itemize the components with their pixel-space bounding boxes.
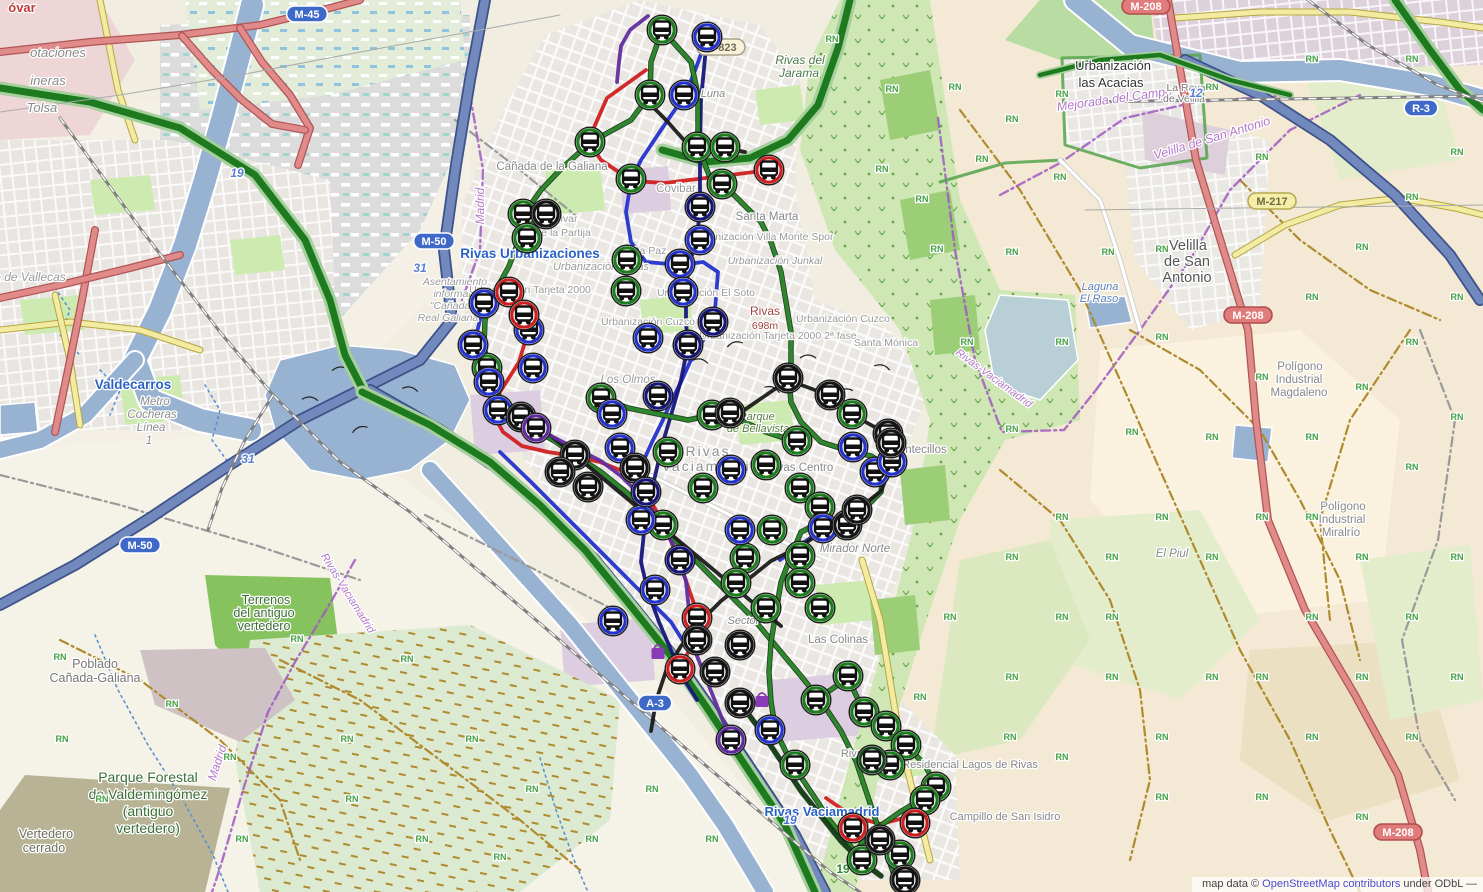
rn-label: RN	[1451, 412, 1464, 422]
rn-label: RN	[1256, 512, 1269, 522]
map-label: Terrenos	[242, 593, 291, 607]
map-label: Santa Mónica	[854, 337, 918, 349]
bus-stop-icon[interactable]	[631, 477, 661, 507]
map-label: del antiguo	[233, 606, 294, 620]
bus-stop-icon[interactable]	[838, 813, 868, 843]
rn-label: RN	[341, 734, 354, 744]
rn-label: RN	[876, 164, 889, 174]
attribution: map data © OpenStreetMap contributors un…	[1192, 877, 1483, 892]
map-label: Madrid	[473, 187, 487, 224]
rn-label: RN	[1056, 337, 1069, 347]
rn-label: RN	[1206, 82, 1219, 92]
map-label: Urbanización	[1075, 58, 1151, 73]
rn-label: RN	[1056, 89, 1069, 99]
rn-label: RN	[961, 337, 974, 347]
map-label: de San	[1164, 254, 1210, 270]
attribution-suffix: under ODbL —	[1400, 878, 1477, 890]
rn-label: RN	[466, 734, 479, 744]
rn-label: RN	[1306, 732, 1319, 742]
rn-label: RN	[1126, 427, 1139, 437]
svg-text:A-3: A-3	[646, 698, 664, 710]
bus-stop-icon[interactable]	[754, 155, 784, 185]
svg-text:M-208: M-208	[1130, 1, 1161, 13]
map-label: Laguna	[1082, 281, 1119, 293]
rn-label: RN	[1356, 242, 1369, 252]
map-label: 12	[1189, 86, 1203, 100]
bus-stop-icon[interactable]	[575, 127, 605, 157]
rn-label: RN	[1451, 147, 1464, 157]
rn-label: RN	[1156, 512, 1169, 522]
bus-stop-icon[interactable]	[715, 398, 745, 428]
rn-label: RN	[1156, 732, 1169, 742]
rn-label: RN	[1006, 672, 1019, 682]
map-label: óvar	[8, 0, 35, 15]
map-canvas[interactable]: óvarotacionesinerasTolsae de VallecasVal…	[0, 0, 1483, 892]
rn-label: RN	[931, 244, 944, 254]
rn-label: RN	[646, 784, 659, 794]
rn-label: RN	[1256, 672, 1269, 682]
rn-label: RN	[886, 84, 899, 94]
rn-label: RN	[54, 652, 67, 662]
rn-label: RN	[1356, 672, 1369, 682]
map-label: Luna	[701, 88, 725, 100]
rn-label: RN	[976, 154, 989, 164]
bus-stop-icon[interactable]	[685, 225, 715, 255]
map-label: Real Galiana	[418, 312, 479, 324]
bus-stop-icon[interactable]	[458, 330, 488, 360]
road-shield-A-3: A-3	[638, 695, 672, 711]
map-label: Santa Marta	[736, 211, 799, 223]
map-root: óvarotacionesinerasTolsae de VallecasVal…	[0, 0, 1483, 892]
rn-label: RN	[1156, 244, 1169, 254]
map-label: Cocheras	[127, 409, 176, 421]
rn-label: RN	[914, 692, 927, 702]
rn-label: RN	[1006, 552, 1019, 562]
bus-stop-icon[interactable]	[725, 515, 755, 545]
road-shield-M-208: M-208	[1374, 824, 1422, 840]
rn-label: RN	[949, 82, 962, 92]
map-label: (antiguo	[123, 803, 174, 819]
bus-stop-icon[interactable]	[597, 399, 627, 429]
map-label: 19	[230, 166, 244, 180]
rn-label: RN	[1406, 462, 1419, 472]
rn-label: RN	[1406, 54, 1419, 64]
svg-text:M-208: M-208	[1382, 827, 1413, 839]
rn-label: RN	[1156, 792, 1169, 802]
rn-label: RN	[291, 634, 304, 644]
bus-stop-icon[interactable]	[668, 277, 698, 307]
bus-stop-icon[interactable]	[707, 169, 737, 199]
bus-stop-icon[interactable]	[785, 541, 815, 571]
rn-label: RN	[1206, 552, 1219, 562]
svg-text:M-50: M-50	[421, 236, 446, 248]
map-label: Mirador Norte	[820, 543, 890, 555]
rn-label: RN	[944, 612, 957, 622]
bus-stop-icon[interactable]	[573, 472, 603, 502]
rn-label: RN	[1406, 612, 1419, 622]
bus-stop-icon[interactable]	[857, 745, 887, 775]
map-label: Industrial	[1319, 514, 1366, 526]
bus-stop-icon[interactable]	[890, 865, 920, 892]
map-label: Vertedero	[19, 827, 73, 841]
bus-stop-icon[interactable]	[598, 606, 628, 636]
rn-label: RN	[166, 699, 179, 709]
map-label: El Piul	[1156, 548, 1189, 560]
rn-label: RN	[96, 794, 109, 804]
rn-label: RN	[1306, 292, 1319, 302]
rn-label: RN	[1451, 292, 1464, 302]
bus-stop-icon[interactable]	[688, 473, 718, 503]
map-label: Línea	[137, 422, 166, 434]
bus-stop-icon[interactable]	[751, 593, 781, 623]
bus-stop-icon[interactable]	[612, 245, 642, 275]
rn-label: RN	[1206, 672, 1219, 682]
svg-text:M-45: M-45	[294, 9, 319, 21]
map-label: Velilla	[1169, 238, 1208, 254]
bus-stop-icon[interactable]	[633, 323, 663, 353]
rn-label: RN	[1306, 432, 1319, 442]
bus-stop-icon[interactable]	[521, 413, 551, 443]
bus-stop-icon[interactable]	[698, 307, 728, 337]
map-label: vertedero	[238, 619, 291, 633]
rn-label: RN	[1256, 152, 1269, 162]
rn-label: RN	[1006, 424, 1019, 434]
bus-stop-icon[interactable]	[643, 381, 673, 411]
map-label: "Cañada	[430, 300, 471, 312]
map-label: Rivas del	[775, 53, 825, 67]
attribution-prefix: map data ©	[1202, 878, 1262, 890]
bus-stop-icon[interactable]	[721, 568, 751, 598]
bus-stop-icon[interactable]	[773, 363, 803, 393]
bus-stop-icon[interactable]	[751, 450, 781, 480]
rn-label: RN	[1451, 672, 1464, 682]
road-shield-R-3: R-3	[1404, 100, 1438, 116]
rn-label: RN	[236, 834, 249, 844]
rn-label: RN	[1006, 114, 1019, 124]
map-label: Valdecarros	[95, 377, 172, 392]
map-label: 19	[783, 813, 797, 827]
rn-label: RN	[1256, 372, 1269, 382]
rn-label: RN	[1306, 512, 1319, 522]
map-label: 1	[146, 435, 152, 447]
area-corridor-forest-4	[900, 465, 950, 525]
bus-stop-icon[interactable]	[635, 80, 665, 110]
bus-stop-icon[interactable]	[665, 654, 695, 684]
bus-stop-icon[interactable]	[710, 132, 740, 162]
bus-stop-icon[interactable]	[518, 353, 548, 383]
map-label: Miralrío	[1322, 527, 1360, 539]
bus-stop-icon[interactable]	[665, 249, 695, 279]
bus-stop-icon[interactable]	[531, 199, 561, 229]
rn-label: RN	[494, 852, 507, 862]
map-label: Jarama	[778, 66, 819, 80]
road-shield-M-45: M-45	[287, 6, 328, 22]
map-label: El Raso	[1080, 293, 1119, 305]
area-green-patch-v3	[230, 235, 285, 275]
map-label: Los Olmos	[601, 374, 656, 386]
map-label: Magdaleno	[1271, 387, 1328, 399]
area-corridor-forest-1	[880, 70, 940, 140]
map-label: cerrado	[23, 841, 65, 855]
bus-stop-icon[interactable]	[616, 164, 646, 194]
bus-stop-icon[interactable]	[815, 380, 845, 410]
map-label: las Acacias	[1078, 75, 1144, 90]
road-shield-M-217: M-217	[1248, 193, 1296, 209]
rn-label: RN	[586, 834, 599, 844]
rn-label: RN	[346, 794, 359, 804]
map-label: 31	[241, 452, 255, 466]
map-label: Cañada de la Galiana	[496, 161, 608, 173]
rn-label: RN	[1056, 512, 1069, 522]
map-label: Antonio	[1162, 270, 1211, 286]
bus-stop-icon[interactable]	[785, 568, 815, 598]
map-label: Polígono	[1320, 501, 1365, 513]
bus-stop-icon[interactable]	[669, 80, 699, 110]
bus-stop-icon[interactable]	[665, 545, 695, 575]
rn-label: RN	[1102, 247, 1115, 257]
bus-stop-icon[interactable]	[647, 15, 677, 45]
map-label: ineras	[30, 73, 66, 88]
road-shield-M-208: M-208	[1122, 0, 1170, 14]
bus-stop-icon[interactable]	[782, 426, 812, 456]
map-label: Campillo de San Isidro	[950, 811, 1061, 823]
rn-label: RN	[1004, 732, 1017, 742]
map-label: Urbanización Cuzco	[796, 313, 890, 325]
rn-label: RN	[1356, 552, 1369, 562]
map-label: Poblado	[72, 657, 118, 671]
map-label: otaciones	[30, 45, 86, 60]
rn-label: RN	[1406, 732, 1419, 742]
bus-stop-icon[interactable]	[626, 505, 656, 535]
rn-label: RN	[1006, 247, 1019, 257]
map-label: informal	[433, 288, 471, 300]
bus-stop-icon[interactable]	[611, 276, 641, 306]
rn-label: RN	[1106, 552, 1119, 562]
bus-stop-icon[interactable]	[725, 688, 755, 718]
bus-stop-icon[interactable]	[865, 825, 895, 855]
map-label: Rivas	[750, 304, 780, 318]
bus-stop-icon[interactable]	[682, 625, 712, 655]
rn-label: RN	[706, 834, 719, 844]
bus-stop-icon[interactable]	[685, 192, 715, 222]
bus-stop-icon[interactable]	[842, 495, 872, 525]
rn-label: RN	[1056, 612, 1069, 622]
area-green-patch-v4	[90, 175, 155, 215]
attribution-osm-link[interactable]: OpenStreetMap contributors	[1262, 878, 1400, 890]
bus-stop-icon[interactable]	[474, 367, 504, 397]
bus-stop-icon[interactable]	[700, 657, 730, 687]
rn-label: RN	[1054, 172, 1067, 182]
map-label: Parque Forestal	[98, 769, 198, 785]
bus-stop-icon[interactable]	[653, 437, 683, 467]
map-label: Polígono	[1277, 361, 1322, 373]
bus-stop-icon[interactable]	[900, 808, 930, 838]
svg-text:R-3: R-3	[1412, 103, 1430, 115]
rn-label: RN	[916, 194, 929, 204]
rn-label: RN	[1406, 192, 1419, 202]
bus-stop-icon[interactable]	[725, 630, 755, 660]
water-lake-right	[1232, 425, 1272, 462]
rn-label: RN	[526, 784, 539, 794]
rn-label: RN	[56, 734, 69, 744]
rn-label: RN	[1056, 752, 1069, 762]
road-shield-M-50: M-50	[120, 537, 161, 553]
rn-label: RN	[1306, 612, 1319, 622]
rn-label: RN	[224, 752, 237, 762]
bus-stop-icon[interactable]	[545, 457, 575, 487]
bus-stop-icon[interactable]	[673, 330, 703, 360]
rn-label: RN	[1206, 432, 1219, 442]
bus-stop-icon[interactable]	[716, 455, 746, 485]
svg-text:M-217: M-217	[1256, 196, 1287, 208]
map-label: Metro	[140, 396, 170, 408]
bus-stop-icon[interactable]	[509, 300, 539, 330]
map-label: Industrial	[1276, 374, 1323, 386]
rn-label: RN	[416, 834, 429, 844]
map-label: Covibar	[656, 183, 696, 195]
rn-label: RN	[1406, 337, 1419, 347]
water-pond-left	[0, 402, 38, 435]
rn-label: RN	[1106, 612, 1119, 622]
rn-label: RN	[1451, 552, 1464, 562]
svg-text:M-50: M-50	[127, 540, 152, 552]
map-label: ivar	[561, 213, 578, 225]
bus-stop-icon[interactable]	[805, 593, 835, 623]
bus-stop-icon[interactable]	[876, 428, 906, 458]
bus-stop-icon[interactable]	[692, 22, 722, 52]
bus-stop-icon[interactable]	[757, 515, 787, 545]
map-label: Tolsa	[27, 100, 58, 115]
map-label: Cañada-Galiana	[49, 671, 140, 685]
rn-label: RN	[1356, 812, 1369, 822]
rn-label: RN	[1106, 672, 1119, 682]
road-shield-M-50: M-50	[414, 233, 455, 249]
rn-label: RN	[1356, 382, 1369, 392]
map-label: vertedero)	[116, 820, 180, 836]
bus-stop-icon[interactable]	[512, 223, 542, 253]
bus-stop-icon[interactable]	[682, 132, 712, 162]
map-label: 31	[413, 261, 427, 275]
bus-stop-icon[interactable]	[755, 715, 785, 745]
bus-stop-icon[interactable]	[716, 725, 746, 755]
bus-stop-icon[interactable]	[801, 685, 831, 715]
bus-stop-icon[interactable]	[838, 432, 868, 462]
rn-label: RN	[1306, 54, 1319, 64]
map-label: Urbanización Junkal	[728, 255, 823, 267]
rn-label: RN	[826, 34, 839, 44]
svg-text:M-208: M-208	[1232, 310, 1263, 322]
rn-label: RN	[1156, 332, 1169, 342]
rn-label: RN	[1256, 792, 1269, 802]
map-label: Residencial Lagos de Rivas	[902, 759, 1038, 771]
road-shield-M-208: M-208	[1224, 307, 1272, 323]
map-label: e de Vallecas	[0, 270, 66, 284]
map-label: Las Colinas	[808, 634, 868, 646]
bus-stop-icon[interactable]	[780, 750, 810, 780]
bus-stop-icon[interactable]	[640, 575, 670, 605]
rn-label: RN	[401, 654, 414, 664]
bus-stop-icon[interactable]	[833, 661, 863, 691]
